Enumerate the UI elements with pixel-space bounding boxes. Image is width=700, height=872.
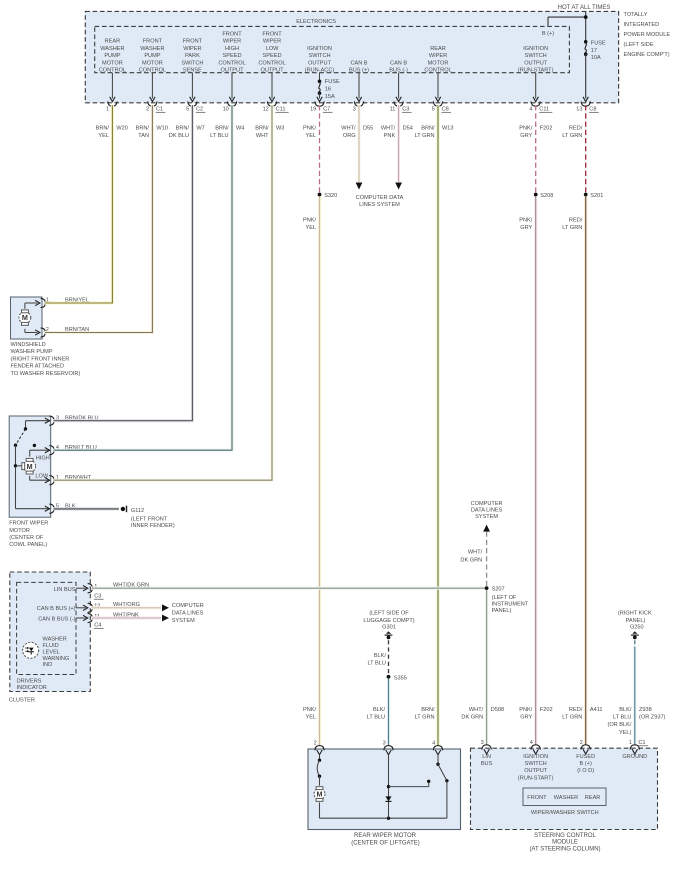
svg-text:(LEFT SIDE: (LEFT SIDE (624, 42, 654, 48)
svg-text:PANEL): PANEL) (626, 618, 646, 624)
svg-text:G301: G301 (382, 625, 396, 631)
svg-text:10A: 10A (591, 55, 601, 61)
svg-text:LT GRN: LT GRN (562, 225, 582, 231)
svg-text:OUTPUT: OUTPUT (524, 768, 548, 774)
svg-text:GRY: GRY (520, 225, 532, 231)
svg-text:A411: A411 (590, 707, 603, 713)
svg-text:FRONT: FRONT (143, 39, 163, 45)
svg-text:REAR: REAR (430, 46, 446, 52)
svg-text:CONTROL: CONTROL (99, 68, 126, 74)
svg-text:OUTPUT: OUTPUT (308, 60, 332, 66)
svg-text:FRONT: FRONT (527, 795, 547, 801)
svg-text:IGNITION: IGNITION (523, 46, 548, 52)
svg-text:Z938: Z938 (639, 707, 652, 713)
svg-text:C8: C8 (589, 107, 596, 113)
svg-text:17: 17 (591, 48, 597, 54)
svg-text:LT BLU: LT BLU (613, 715, 631, 721)
svg-text:SYSTEM: SYSTEM (172, 618, 195, 624)
svg-text:(RUN-START): (RUN-START) (518, 775, 554, 781)
svg-text:LT GRN: LT GRN (415, 715, 435, 721)
svg-text:DK GRN: DK GRN (461, 715, 483, 721)
svg-text:B (+): B (+) (580, 761, 592, 767)
svg-text:SWITCH: SWITCH (525, 761, 547, 767)
svg-text:LT BLU: LT BLU (367, 661, 385, 667)
svg-text:BRN/: BRN/ (96, 126, 110, 132)
svg-text:INTEGRATED: INTEGRATED (624, 22, 660, 28)
svg-text:5: 5 (432, 107, 435, 113)
svg-text:WIPER: WIPER (183, 46, 201, 52)
svg-text:OUTPUT: OUTPUT (524, 60, 548, 66)
svg-text:BUS (+): BUS (+) (349, 68, 369, 74)
svg-text:FRONT WIPER: FRONT WIPER (9, 521, 48, 527)
svg-text:BLK/: BLK/ (373, 707, 386, 713)
svg-text:(RUN-START): (RUN-START) (518, 68, 554, 74)
svg-text:FRONT: FRONT (222, 31, 242, 37)
svg-text:WHT/: WHT/ (341, 126, 356, 132)
svg-text:SWITCH: SWITCH (181, 60, 203, 66)
svg-text:WHT/: WHT/ (381, 126, 396, 132)
svg-text:DATA LINES: DATA LINES (471, 507, 503, 513)
svg-text:CAN B BUS (+): CAN B BUS (+) (37, 606, 76, 612)
svg-text:IND: IND (43, 662, 53, 668)
svg-text:C4: C4 (94, 623, 101, 629)
svg-text:LT GRN: LT GRN (562, 715, 582, 721)
svg-text:G250: G250 (630, 625, 644, 631)
svg-text:LINES SYSTEM: LINES SYSTEM (359, 202, 400, 208)
svg-text:PNK/: PNK/ (519, 217, 533, 223)
svg-text:BUS: BUS (481, 761, 493, 767)
svg-text:S201: S201 (590, 193, 603, 199)
svg-text:(AT STEERING COLUMN): (AT STEERING COLUMN) (529, 846, 600, 852)
svg-text:(I O D): (I O D) (577, 768, 594, 774)
svg-text:MODULE: MODULE (552, 840, 578, 846)
svg-text:W10: W10 (156, 126, 168, 132)
svg-text:2: 2 (580, 740, 583, 746)
svg-text:YEL): YEL) (619, 730, 632, 736)
svg-text:YEL: YEL (306, 225, 317, 231)
svg-text:M: M (27, 462, 33, 471)
svg-text:C11: C11 (539, 107, 549, 113)
svg-text:(LEFT SIDE OF: (LEFT SIDE OF (369, 611, 409, 617)
svg-text:GRY: GRY (520, 715, 532, 721)
svg-text:4: 4 (530, 740, 533, 746)
svg-text:1: 1 (629, 740, 632, 746)
svg-text:(RIGHT KICK: (RIGHT KICK (618, 611, 652, 617)
svg-text:3: 3 (383, 741, 386, 747)
svg-text:10: 10 (223, 107, 229, 113)
svg-text:CAN B BUS (-): CAN B BUS (-) (38, 617, 75, 623)
svg-text:RED/: RED/ (569, 217, 583, 223)
svg-text:B (+): B (+) (542, 31, 554, 37)
svg-text:(CENTER OF: (CENTER OF (9, 535, 44, 541)
svg-text:BRN/: BRN/ (176, 126, 190, 132)
svg-text:BRN/: BRN/ (136, 126, 150, 132)
svg-text:IGNITION: IGNITION (523, 754, 548, 760)
svg-text:TOTALLY: TOTALLY (624, 12, 648, 18)
svg-text:WIPER/WASHER SWITCH: WIPER/WASHER SWITCH (531, 810, 599, 816)
svg-text:M: M (317, 790, 323, 799)
svg-text:BUS (-): BUS (-) (389, 68, 408, 74)
svg-text:IGNITION: IGNITION (307, 46, 332, 52)
svg-text:C8: C8 (442, 107, 449, 113)
svg-text:GROUND: GROUND (622, 754, 647, 760)
svg-text:PNK/: PNK/ (519, 707, 533, 713)
svg-text:REAR: REAR (105, 39, 121, 45)
svg-text:LEVEL: LEVEL (43, 649, 60, 655)
svg-text:W13: W13 (442, 126, 454, 132)
svg-text:(LEFT OF: (LEFT OF (492, 595, 517, 601)
svg-text:HIGH: HIGH (36, 455, 50, 461)
svg-text:PNK: PNK (384, 133, 396, 139)
svg-text:SWITCH: SWITCH (525, 53, 547, 59)
svg-text:LT GRN: LT GRN (415, 133, 435, 139)
svg-text:PARK: PARK (185, 53, 200, 59)
svg-text:LT BLU: LT BLU (210, 133, 228, 139)
svg-text:HIGH: HIGH (225, 46, 239, 52)
svg-text:15A: 15A (325, 94, 335, 100)
svg-text:BRN/: BRN/ (421, 126, 435, 132)
svg-text:POWER MODULE: POWER MODULE (624, 32, 671, 38)
svg-text:LUGGAGE COMPT): LUGGAGE COMPT) (363, 618, 414, 624)
svg-text:(LEFT FRONT: (LEFT FRONT (131, 516, 168, 522)
svg-text:DRIVERS: DRIVERS (17, 678, 42, 684)
svg-text:ELECTRONICS: ELECTRONICS (296, 19, 336, 25)
svg-text:11: 11 (390, 107, 396, 113)
svg-text:3: 3 (353, 107, 356, 113)
svg-text:WHT: WHT (256, 133, 269, 139)
svg-text:INSTRUMENT: INSTRUMENT (492, 602, 529, 608)
svg-text:CLUSTER: CLUSTER (9, 697, 35, 703)
svg-text:F202: F202 (540, 126, 553, 132)
svg-text:SWITCH: SWITCH (308, 53, 330, 59)
svg-text:FUSE: FUSE (591, 41, 606, 47)
svg-text:WHT/PNK: WHT/PNK (113, 612, 139, 618)
svg-text:INNER FENDER): INNER FENDER) (131, 523, 175, 529)
svg-text:MOTOR: MOTOR (102, 60, 123, 66)
svg-text:CAN B: CAN B (350, 60, 367, 66)
svg-text:SPEED: SPEED (263, 53, 282, 59)
svg-text:OUTPUT: OUTPUT (261, 68, 285, 74)
svg-text:MOTOR: MOTOR (9, 528, 30, 534)
svg-text:PNK/: PNK/ (303, 126, 317, 132)
svg-text:YEL: YEL (306, 715, 317, 721)
svg-text:(CENTER OF LIFTGATE): (CENTER OF LIFTGATE) (351, 841, 420, 847)
svg-text:C7: C7 (323, 107, 330, 113)
svg-text:S320: S320 (324, 193, 337, 199)
svg-text:C3: C3 (402, 107, 409, 113)
svg-text:PNK/: PNK/ (519, 126, 533, 132)
svg-text:REAR: REAR (585, 795, 601, 801)
svg-text:BRN/: BRN/ (215, 126, 229, 132)
svg-text:BRN/: BRN/ (255, 126, 269, 132)
svg-text:5: 5 (186, 107, 189, 113)
svg-text:D54: D54 (403, 126, 413, 132)
svg-text:YEL: YEL (98, 133, 109, 139)
svg-text:LIN BUS: LIN BUS (54, 587, 76, 593)
svg-text:LT BLU: LT BLU (367, 715, 385, 721)
svg-text:WASHER: WASHER (140, 46, 164, 52)
svg-text:WASHER: WASHER (554, 795, 578, 801)
svg-text:W20: W20 (116, 126, 128, 132)
svg-text:WASHER: WASHER (100, 46, 124, 52)
svg-text:ENGINE COMP'T): ENGINE COMP'T) (624, 52, 670, 58)
svg-text:TAN: TAN (138, 133, 149, 139)
svg-text:S208: S208 (540, 193, 553, 199)
svg-text:FLUID: FLUID (43, 643, 59, 649)
svg-text:COMPUTER DATA: COMPUTER DATA (356, 195, 404, 201)
svg-text:WHT/: WHT/ (468, 550, 483, 556)
svg-text:INDICATOR: INDICATOR (17, 685, 47, 691)
svg-text:4: 4 (432, 741, 435, 747)
svg-text:CONTROL: CONTROL (218, 60, 245, 66)
svg-text:HOT AT ALL TIMES: HOT AT ALL TIMES (558, 5, 611, 11)
svg-text:16: 16 (325, 87, 331, 93)
svg-text:DATA LINES: DATA LINES (172, 610, 204, 616)
svg-text:F202: F202 (540, 707, 553, 713)
svg-text:LT GRN: LT GRN (562, 133, 582, 139)
svg-text:19: 19 (310, 107, 316, 113)
svg-text:DK GRN: DK GRN (460, 557, 482, 563)
svg-text:MOTOR: MOTOR (428, 60, 449, 66)
svg-text:FUSED: FUSED (576, 754, 595, 760)
svg-text:SYSTEM: SYSTEM (475, 514, 498, 520)
svg-text:GRY: GRY (520, 133, 532, 139)
svg-text:WIPER: WIPER (429, 53, 447, 59)
svg-text:CONTROL: CONTROL (424, 68, 451, 74)
svg-text:WARNING: WARNING (43, 656, 70, 662)
svg-text:WHT/ORG: WHT/ORG (113, 602, 140, 608)
svg-text:S355: S355 (394, 675, 407, 681)
svg-text:COMPUTER: COMPUTER (471, 501, 503, 507)
svg-text:PANEL): PANEL) (492, 608, 512, 614)
svg-text:MOTOR: MOTOR (142, 60, 163, 66)
svg-text:D55: D55 (363, 126, 373, 132)
svg-text:C11: C11 (276, 107, 286, 113)
svg-text:CONTROL: CONTROL (258, 60, 285, 66)
svg-text:PNK/: PNK/ (303, 217, 317, 223)
svg-text:G112: G112 (131, 508, 144, 514)
svg-text:C1: C1 (156, 107, 163, 113)
svg-text:(RUN-ACC): (RUN-ACC) (305, 68, 335, 74)
svg-text:LIN: LIN (482, 754, 491, 760)
svg-text:W4: W4 (236, 126, 244, 132)
svg-text:(OR BLK/: (OR BLK/ (607, 722, 631, 728)
svg-text:WINDSHIELD: WINDSHIELD (11, 342, 46, 348)
svg-text:COWL PANEL): COWL PANEL) (9, 542, 47, 548)
svg-text:(OR Z937): (OR Z937) (639, 715, 666, 721)
svg-text:PUMP: PUMP (144, 53, 160, 59)
svg-text:FRONT: FRONT (262, 31, 282, 37)
svg-text:W7: W7 (196, 126, 204, 132)
svg-text:RED/: RED/ (569, 126, 583, 132)
svg-text:BLK/: BLK/ (374, 653, 387, 659)
svg-text:13: 13 (576, 107, 582, 113)
svg-text:WASHER PUMP: WASHER PUMP (11, 349, 53, 355)
svg-text:WHT/: WHT/ (469, 707, 484, 713)
svg-text:2: 2 (314, 741, 317, 747)
svg-text:BRN/: BRN/ (421, 707, 435, 713)
svg-text:S207: S207 (492, 587, 505, 593)
svg-text:C2: C2 (196, 107, 203, 113)
svg-text:C1: C1 (638, 740, 645, 746)
svg-text:2: 2 (146, 107, 149, 113)
svg-text:FRONT: FRONT (183, 39, 203, 45)
svg-text:REAR WIPER MOTOR: REAR WIPER MOTOR (354, 833, 417, 839)
svg-text:ORG: ORG (343, 133, 356, 139)
svg-text:RED/: RED/ (569, 707, 583, 713)
svg-text:DK BLU: DK BLU (169, 133, 189, 139)
svg-text:WASHER: WASHER (43, 637, 67, 643)
svg-text:PNK/: PNK/ (303, 707, 317, 713)
svg-text:STEERING CONTROL: STEERING CONTROL (534, 833, 596, 839)
svg-text:BLK/: BLK/ (619, 707, 632, 713)
svg-text:OUTPUT: OUTPUT (221, 68, 245, 74)
svg-text:C3: C3 (94, 594, 101, 600)
svg-text:3: 3 (481, 740, 484, 746)
svg-text:SENSE: SENSE (183, 68, 202, 74)
svg-text:SPEED: SPEED (223, 53, 242, 59)
svg-text:CAN B: CAN B (390, 60, 407, 66)
svg-text:1: 1 (106, 107, 109, 113)
svg-text:TO WASHER RESERVOIR): TO WASHER RESERVOIR) (11, 371, 81, 377)
svg-text:COMPUTER: COMPUTER (172, 603, 204, 609)
svg-text:D508: D508 (491, 707, 504, 713)
svg-text:CONTROL: CONTROL (139, 68, 166, 74)
svg-text:WIPER: WIPER (263, 39, 281, 45)
svg-text:12: 12 (263, 107, 269, 113)
svg-text:W3: W3 (276, 126, 284, 132)
svg-text:WIPER: WIPER (223, 39, 241, 45)
svg-text:LOW: LOW (266, 46, 279, 52)
svg-text:FUSE: FUSE (325, 79, 340, 85)
svg-text:PUMP: PUMP (104, 53, 120, 59)
svg-text:M: M (22, 313, 28, 322)
svg-text:(RIGHT FRONT INNER: (RIGHT FRONT INNER (11, 356, 70, 362)
svg-text:FENDER ATTACHED: FENDER ATTACHED (11, 364, 65, 370)
svg-text:YEL: YEL (306, 133, 317, 139)
svg-text:4: 4 (529, 107, 532, 113)
